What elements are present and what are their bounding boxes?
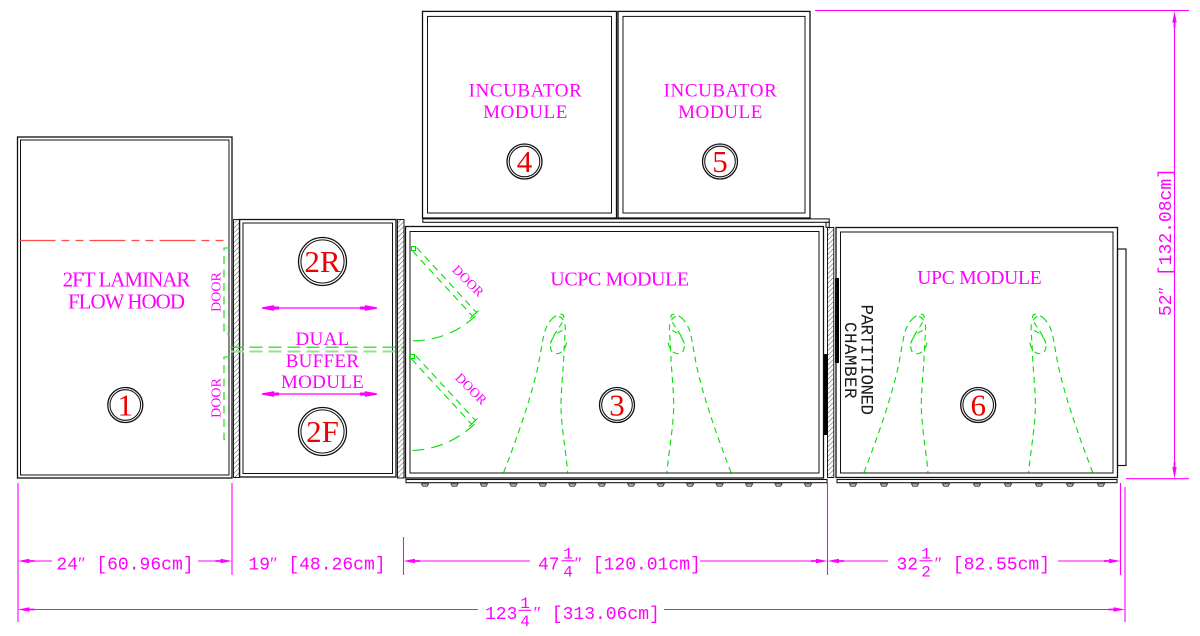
svg-text:3: 3: [609, 388, 625, 423]
svg-text:DOOR: DOOR: [210, 378, 225, 418]
svg-text:INCUBATOR: INCUBATOR: [664, 80, 778, 101]
svg-text:4: 4: [520, 613, 530, 631]
svg-text:UPC MODULE: UPC MODULE: [917, 268, 1041, 289]
svg-text:47: 47: [538, 556, 560, 576]
svg-text:2FT LAMINAR: 2FT LAMINAR: [63, 268, 191, 292]
svg-text:2: 2: [921, 564, 931, 582]
svg-text:MODULE: MODULE: [281, 372, 364, 393]
svg-text:INCUBATOR: INCUBATOR: [469, 80, 583, 101]
svg-text:FLOW HOOD: FLOW HOOD: [68, 290, 185, 314]
svg-text:2R: 2R: [304, 244, 341, 279]
svg-text:″ [120.01cm]: ″ [120.01cm]: [575, 554, 701, 576]
svg-text:DUAL: DUAL: [296, 329, 350, 350]
svg-text:4: 4: [517, 144, 533, 179]
svg-text:32: 32: [897, 556, 919, 576]
svg-text:6: 6: [970, 388, 986, 423]
svg-text:DOOR: DOOR: [449, 262, 487, 300]
svg-text:19″ [48.26cm]: 19″ [48.26cm]: [248, 554, 385, 576]
svg-text:52″ [132.08cm]: 52″ [132.08cm]: [1155, 168, 1177, 316]
svg-text:CHAMBER: CHAMBER: [839, 322, 859, 399]
svg-text:24″ [60.96cm]: 24″ [60.96cm]: [56, 554, 193, 576]
svg-text:MODULE: MODULE: [483, 102, 568, 123]
svg-text:UCPC MODULE: UCPC MODULE: [550, 269, 689, 291]
svg-text:123: 123: [485, 605, 517, 625]
svg-text:5: 5: [712, 144, 728, 179]
svg-text:1: 1: [118, 388, 134, 423]
svg-text:BUFFER: BUFFER: [286, 351, 360, 372]
svg-text:2F: 2F: [306, 414, 339, 449]
svg-text:MODULE: MODULE: [678, 102, 763, 123]
svg-text:″ [82.55cm]: ″ [82.55cm]: [935, 554, 1051, 576]
svg-text:″ [313.06cm]: ″ [313.06cm]: [534, 603, 660, 625]
svg-text:DOOR: DOOR: [210, 272, 225, 312]
svg-text:4: 4: [563, 564, 573, 582]
